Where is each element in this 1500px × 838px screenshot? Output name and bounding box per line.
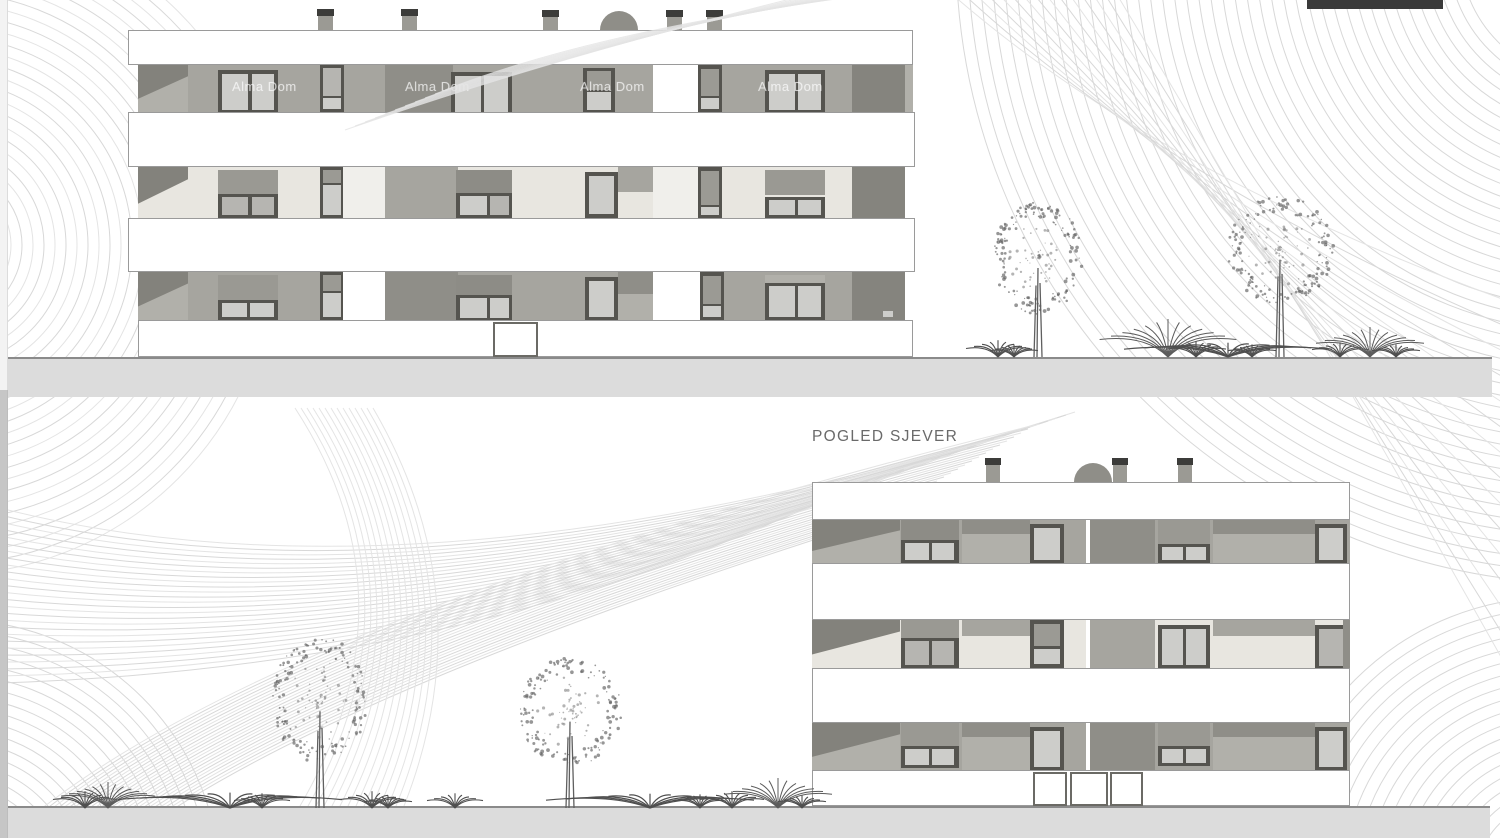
balcony-shadow — [138, 272, 188, 320]
wall-segment — [962, 520, 1030, 534]
ground-band-top — [0, 357, 1492, 397]
chimney-cap — [706, 10, 723, 17]
chimney — [1113, 465, 1127, 482]
door-pane — [323, 185, 341, 215]
slab-band — [812, 668, 1350, 723]
entrance-door — [1070, 772, 1108, 806]
window-pane — [905, 543, 929, 560]
chimney — [543, 17, 558, 30]
window-header — [765, 275, 825, 283]
window-header — [901, 520, 959, 542]
door-pane — [1034, 649, 1060, 664]
window-pane — [932, 641, 954, 665]
chimney-cap — [542, 10, 559, 17]
alma-dom-watermark: Alma Dom — [405, 79, 470, 94]
wall-segment — [618, 272, 653, 294]
window-pane — [589, 281, 614, 317]
building-elevations-layer: Alma DomAlma DomAlma DomAlma Dom — [0, 0, 1500, 838]
door-pane — [587, 92, 611, 110]
chimney — [402, 16, 417, 30]
balcony-shadow — [812, 723, 900, 770]
window-pane — [798, 286, 821, 317]
slab-band — [128, 112, 915, 167]
vent — [883, 311, 893, 317]
window-pane — [484, 76, 508, 112]
wall-dark-block — [852, 65, 905, 112]
top-right-dark-bar — [1307, 0, 1443, 9]
alma-dom-watermark: Alma Dom — [232, 79, 297, 94]
wall-segment — [385, 272, 458, 320]
door-pane — [703, 276, 721, 304]
wall-edge — [1343, 620, 1350, 668]
wall-segment — [1213, 620, 1315, 636]
window-header — [456, 170, 512, 195]
elevation-sheet: Alma DomAlma DomAlma DomAlma Dom POGLED … — [0, 0, 1500, 838]
door-window — [701, 98, 719, 109]
entrance-door — [493, 322, 538, 357]
door-pane — [701, 171, 719, 205]
balcony-shadow — [138, 167, 188, 218]
chimney-cap — [401, 9, 418, 16]
chimney — [667, 17, 682, 30]
window-pane — [250, 303, 274, 317]
window-pane — [769, 200, 795, 215]
recessed-gap — [653, 167, 698, 218]
chimney-cap — [317, 9, 334, 16]
alma-dom-watermark: Alma Dom — [758, 79, 823, 94]
door-pane — [323, 170, 341, 183]
window-pane — [769, 286, 795, 317]
chimney-cap — [985, 458, 1001, 465]
balcony-shadow — [138, 65, 188, 112]
wall-segment — [385, 167, 458, 218]
ground-band-bottom — [0, 806, 1490, 838]
window-pane — [905, 641, 929, 665]
wall-segment — [1213, 737, 1315, 770]
door-pane — [1186, 629, 1206, 665]
parapet-band — [128, 30, 913, 65]
wall-segment — [1213, 723, 1315, 737]
door-pane — [1034, 731, 1060, 767]
window-header — [218, 170, 278, 196]
door-pane — [323, 293, 341, 317]
chimney — [1178, 465, 1192, 482]
chimney — [986, 465, 1000, 482]
slab-band — [128, 218, 915, 272]
door-pane — [1162, 629, 1183, 665]
roof-dome — [1074, 463, 1112, 482]
recessed-gap — [653, 272, 700, 320]
window-pane — [252, 197, 274, 215]
window-pane — [1186, 547, 1206, 560]
roof-dome — [600, 11, 638, 30]
wall-segment — [1090, 723, 1155, 770]
window-pane — [222, 303, 247, 317]
entrance-door — [1110, 772, 1143, 806]
window-pane — [1162, 547, 1183, 560]
wall-segment — [962, 723, 1030, 737]
chimney — [318, 16, 333, 30]
door-window — [323, 98, 341, 109]
window-pane — [1319, 731, 1343, 767]
parapet-band — [812, 482, 1350, 520]
wall-segment — [962, 620, 1030, 636]
chimney-cap — [1177, 458, 1193, 465]
door-pane — [1034, 528, 1060, 560]
wall-segment — [618, 294, 653, 320]
door-pane — [323, 275, 341, 291]
window-pane — [589, 176, 614, 214]
window-pane — [1319, 629, 1343, 666]
wall-segment — [1090, 620, 1155, 668]
window-header — [901, 723, 959, 748]
window-pane — [798, 200, 821, 215]
wall-dark-block — [852, 167, 905, 218]
wall-segment — [1213, 520, 1315, 534]
left-edge-strip-bottom — [0, 390, 8, 838]
window-pane — [905, 749, 929, 765]
balcony-shadow — [812, 620, 900, 668]
window-header — [1158, 723, 1210, 748]
window-pane — [932, 543, 954, 560]
window-pane — [460, 298, 487, 318]
recessed-gap — [343, 167, 385, 218]
window-pane — [460, 196, 487, 215]
window-pane — [490, 196, 509, 215]
entrance-door — [1033, 772, 1067, 806]
window-header — [765, 170, 825, 195]
window-pane — [490, 298, 509, 318]
door-window — [703, 306, 721, 317]
window-pane — [1319, 528, 1343, 560]
window-header — [456, 275, 512, 297]
slab-band — [812, 563, 1350, 620]
balcony-shadow — [812, 520, 900, 563]
chimney — [707, 17, 722, 30]
window-header — [901, 620, 959, 640]
wall-dark-block — [852, 272, 905, 320]
chimney-cap — [666, 10, 683, 17]
recessed-gap — [343, 272, 385, 320]
wall-segment — [1213, 534, 1315, 563]
wall-segment — [1090, 520, 1155, 563]
window-header — [1158, 520, 1210, 547]
wall-segment — [962, 737, 1030, 770]
left-edge-strip-top — [0, 0, 8, 390]
wall-segment — [618, 167, 653, 192]
window-pane — [932, 749, 954, 765]
door-window — [701, 207, 719, 215]
door-pane — [701, 69, 719, 96]
door-pane — [323, 68, 341, 96]
window-pane — [1186, 749, 1206, 763]
door-pane — [1034, 624, 1060, 646]
alma-dom-watermark: Alma Dom — [580, 79, 645, 94]
window-pane — [1162, 749, 1183, 763]
elevation-label-north-view: POGLED SJEVER — [812, 428, 958, 446]
wall-segment — [962, 534, 1030, 563]
window-header — [218, 275, 278, 302]
wall-edge — [905, 65, 913, 112]
window-pane — [222, 197, 248, 215]
chimney-cap — [1112, 458, 1128, 465]
